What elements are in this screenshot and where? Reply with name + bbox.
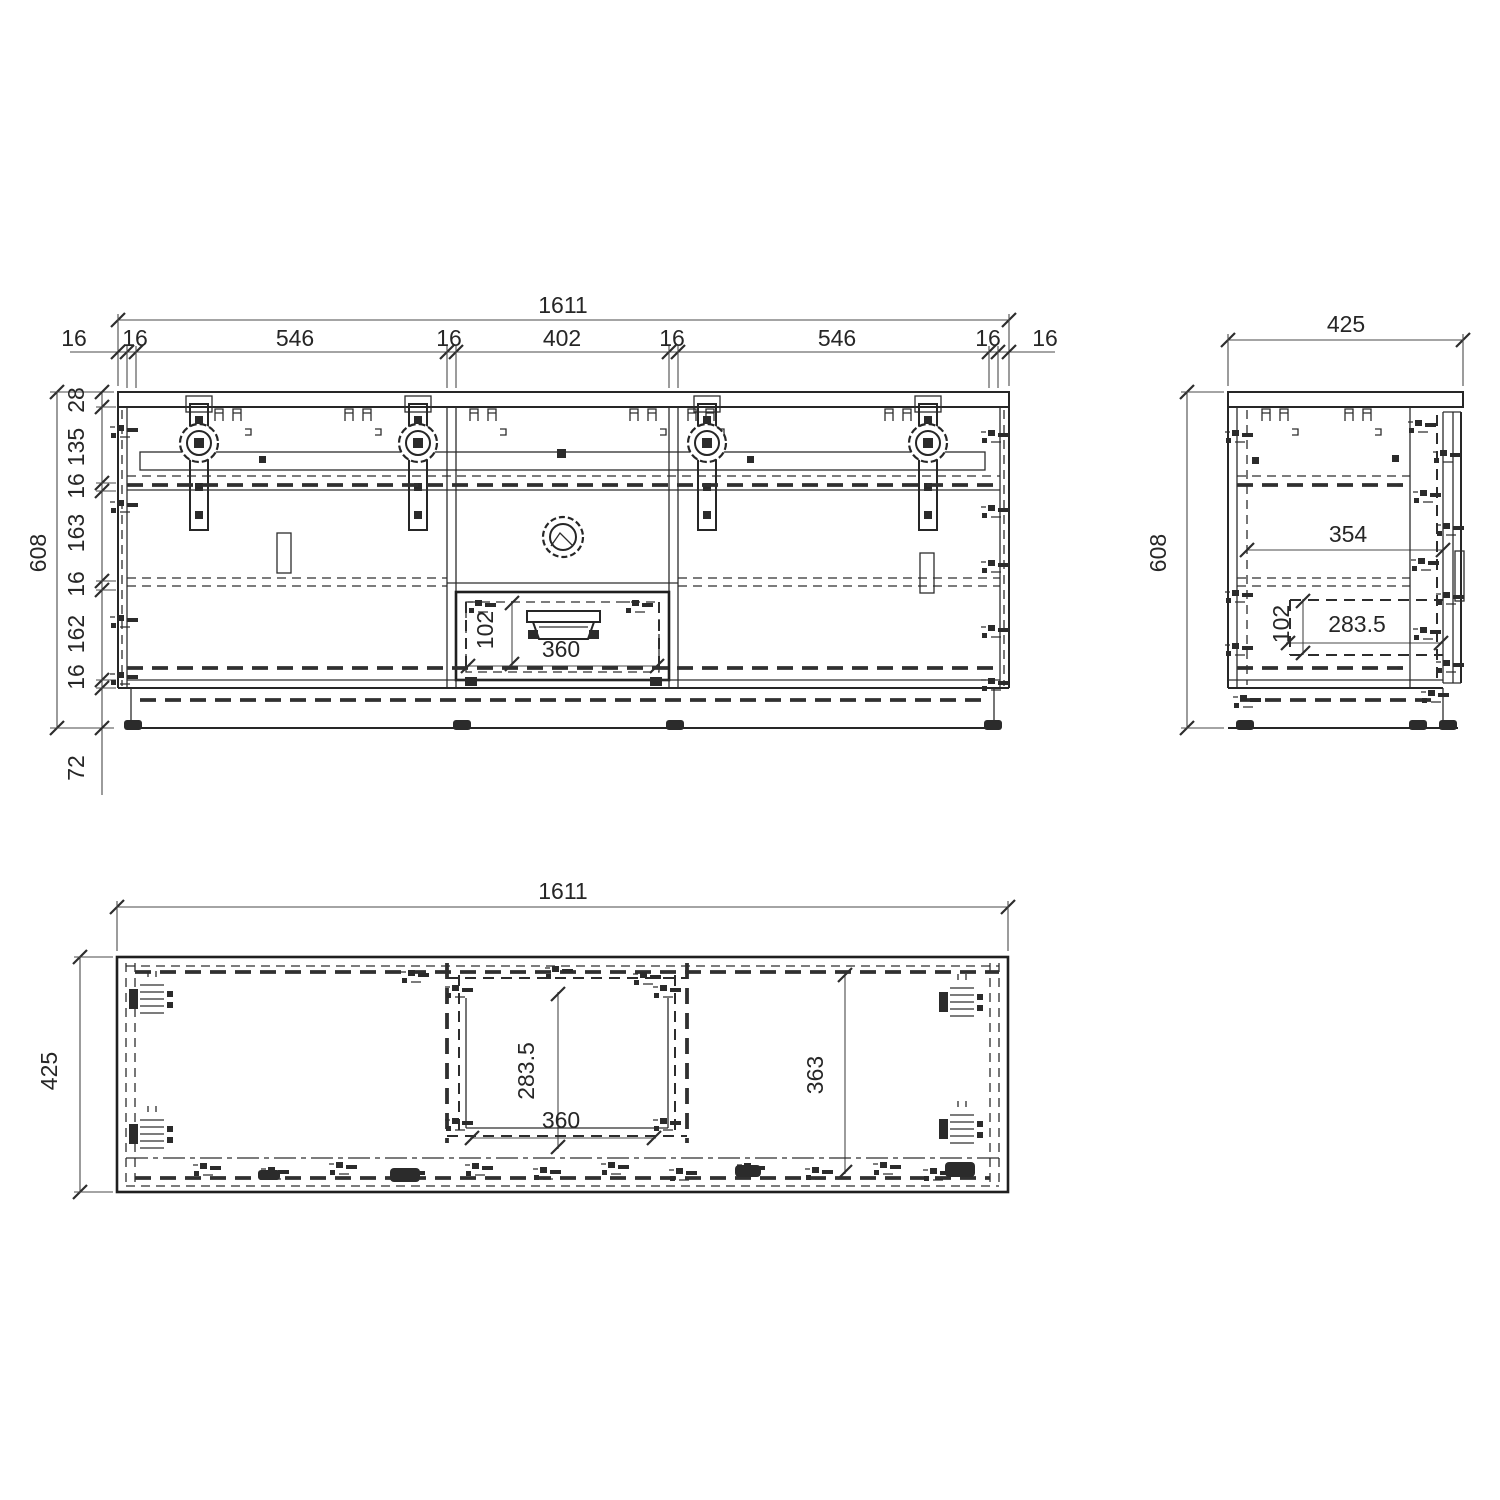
dim-front-chain-6: 546	[818, 325, 856, 351]
hardware-marks	[1436, 592, 1464, 605]
dim-front-chain-4: 402	[543, 325, 581, 351]
clip-icon	[470, 409, 506, 435]
dim-front-chain-8: 16	[1032, 325, 1058, 351]
technical-drawing: 1611 16 16 546 16 402 16 546 16 16	[0, 0, 1500, 1500]
dim-side-drawer-depth: 283.5	[1328, 611, 1386, 637]
cad-sheet: 1611 16 16 546 16 402 16 546 16 16	[0, 0, 1500, 1500]
dim-front-chain-7: 16	[975, 325, 1001, 351]
side-drawing	[1225, 392, 1464, 730]
dim-side-inner-depth: 354	[1329, 521, 1368, 547]
clip-icon	[345, 409, 381, 435]
foot-icon	[453, 720, 471, 730]
hardware-marks	[1408, 420, 1436, 433]
dim-plan-compartment-depth: 363	[802, 1056, 828, 1094]
hardware-marks	[1421, 690, 1449, 703]
foot-icon	[1439, 720, 1457, 730]
dim-front-drawer-width: 360	[542, 636, 580, 662]
clip-icon	[1345, 409, 1381, 435]
top-panel	[118, 392, 1009, 407]
dim-side-depth: 425	[1327, 311, 1365, 337]
hardware-marks	[1436, 660, 1464, 673]
hardware-marks	[465, 1163, 493, 1176]
front-dimensions: 1611 16 16 546 16 402 16 546 16 16	[25, 292, 1058, 795]
clip-icon	[1262, 409, 1298, 435]
dim-side-height: 608	[1145, 534, 1171, 572]
hardware-marks	[939, 1101, 983, 1143]
dim-plan-depth: 425	[36, 1052, 62, 1090]
drawer-handle-icon	[527, 611, 600, 639]
door-roller-icon	[180, 396, 218, 530]
dim-front-hchain-1: 135	[63, 428, 89, 466]
hardware-marks	[981, 625, 1009, 638]
clip-icon	[630, 409, 666, 435]
dim-front-hchain-0: 28	[63, 387, 89, 413]
cable-grommet-icon	[543, 517, 583, 557]
dim-front-chain-5: 16	[659, 325, 685, 351]
hardware-marks	[939, 974, 983, 1016]
hardware-marks	[1436, 523, 1464, 536]
door-roller-icon	[399, 396, 437, 530]
hardware-marks	[129, 971, 173, 1013]
dim-plan-drawer-width: 360	[542, 1107, 580, 1133]
dim-front-chain-1: 16	[122, 325, 148, 351]
hardware-marks	[110, 615, 138, 628]
plan-dimensions: 1611 425 283.5 360 363	[36, 878, 1015, 1199]
dim-front-total-height: 608	[25, 534, 51, 572]
dim-front-plinth-height: 72	[63, 755, 89, 781]
hardware-marks	[1225, 430, 1253, 443]
side-dimensions: 425 608 354 283.5 102	[1145, 311, 1470, 735]
hardware-marks	[981, 560, 1009, 573]
hardware-marks	[110, 672, 138, 685]
hardware-marks	[110, 425, 138, 438]
dim-front-hchain-4: 16	[63, 571, 89, 597]
foot-icon	[1236, 720, 1254, 730]
hardware-marks	[653, 985, 681, 998]
door-pull-icon	[1455, 551, 1464, 601]
dim-plan-drawer-depth: 283.5	[513, 1042, 539, 1100]
top-panel	[1228, 392, 1463, 407]
hardware-marks	[981, 678, 1009, 691]
front-view: 1611 16 16 546 16 402 16 546 16 16	[25, 292, 1058, 795]
door-roller-icon	[909, 396, 947, 530]
dim-front-chain-0: 16	[61, 325, 87, 351]
clip-icon	[215, 409, 251, 435]
hardware-marks	[110, 500, 138, 513]
hardware-marks	[653, 1118, 681, 1131]
dim-front-chain-3: 16	[436, 325, 462, 351]
cabinet-outline	[117, 957, 1008, 1192]
hardware-marks	[873, 1162, 901, 1175]
hardware-marks	[981, 505, 1009, 518]
front-drawing: 102 360	[110, 392, 1009, 730]
foot-icon	[124, 720, 142, 730]
foot-icon	[1409, 720, 1427, 730]
plan-view: 1611 425 283.5 360 363	[36, 878, 1015, 1199]
hardware-marks	[329, 1162, 357, 1175]
dim-plan-width: 1611	[538, 878, 587, 904]
hardware-marks	[193, 1163, 221, 1176]
hardware-marks	[1225, 590, 1253, 603]
dim-front-chain-2: 546	[276, 325, 314, 351]
door-roller-icon	[688, 396, 726, 530]
dim-front-hchain-3: 163	[63, 514, 89, 552]
foot-icon	[984, 720, 1002, 730]
dim-front-hchain-2: 16	[63, 473, 89, 499]
hardware-marks	[981, 430, 1009, 443]
plan-drawing	[117, 957, 1008, 1192]
dim-front-hchain-5: 162	[63, 615, 89, 653]
dim-front-drawer-height: 102	[472, 611, 498, 649]
dim-front-hchain-6: 16	[63, 664, 89, 690]
hardware-marks	[1225, 643, 1253, 656]
side-view: 425 608 354 283.5 102	[1145, 311, 1470, 735]
hardware-marks	[129, 1106, 173, 1148]
hardware-marks	[1411, 558, 1439, 571]
foot-icon	[666, 720, 684, 730]
dim-front-total-width: 1611	[538, 292, 587, 318]
hardware-marks	[601, 1162, 629, 1175]
